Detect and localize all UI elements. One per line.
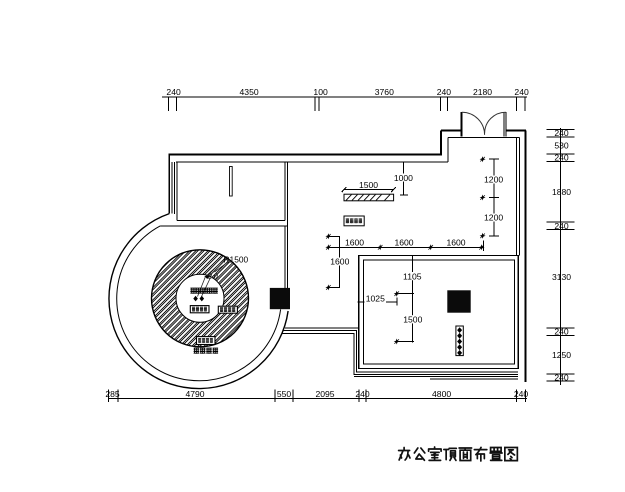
svg-text:240: 240 bbox=[554, 327, 569, 337]
svg-text:240: 240 bbox=[437, 87, 452, 97]
svg-text:1600: 1600 bbox=[330, 256, 349, 266]
svg-text:240: 240 bbox=[514, 87, 529, 97]
svg-text:4790: 4790 bbox=[185, 389, 204, 399]
svg-text:4350: 4350 bbox=[240, 87, 259, 97]
svg-text:3130: 3130 bbox=[552, 272, 571, 282]
svg-text:240: 240 bbox=[554, 153, 569, 163]
svg-text:240: 240 bbox=[355, 389, 370, 399]
svg-text:240: 240 bbox=[554, 221, 569, 231]
svg-text:1500: 1500 bbox=[359, 180, 378, 190]
svg-text:1880: 1880 bbox=[552, 187, 571, 197]
svg-text:530: 530 bbox=[554, 141, 569, 151]
svg-text:1025: 1025 bbox=[366, 294, 385, 304]
svg-text:R1500: R1500 bbox=[224, 255, 249, 265]
svg-text:240: 240 bbox=[166, 87, 181, 97]
svg-text:+2.0: +2.0 bbox=[204, 274, 218, 281]
svg-text:550: 550 bbox=[277, 389, 292, 399]
svg-text:1200: 1200 bbox=[484, 175, 503, 185]
svg-text:2180: 2180 bbox=[473, 87, 492, 97]
svg-text:240: 240 bbox=[554, 128, 569, 138]
svg-text:240: 240 bbox=[514, 389, 529, 399]
svg-text:285: 285 bbox=[105, 389, 120, 399]
svg-text:1600: 1600 bbox=[446, 238, 465, 248]
svg-text:3760: 3760 bbox=[375, 87, 394, 97]
svg-text:1105: 1105 bbox=[403, 271, 422, 281]
svg-text:1200: 1200 bbox=[484, 213, 503, 223]
svg-text:240: 240 bbox=[554, 373, 569, 383]
svg-text:4800: 4800 bbox=[432, 389, 451, 399]
svg-text:1500: 1500 bbox=[403, 315, 422, 325]
svg-text:1600: 1600 bbox=[394, 238, 413, 248]
svg-text:1250: 1250 bbox=[552, 350, 571, 360]
svg-text:1000: 1000 bbox=[394, 173, 413, 183]
svg-text:1600: 1600 bbox=[345, 238, 364, 248]
svg-text:100: 100 bbox=[313, 87, 328, 97]
svg-text:2095: 2095 bbox=[315, 389, 334, 399]
